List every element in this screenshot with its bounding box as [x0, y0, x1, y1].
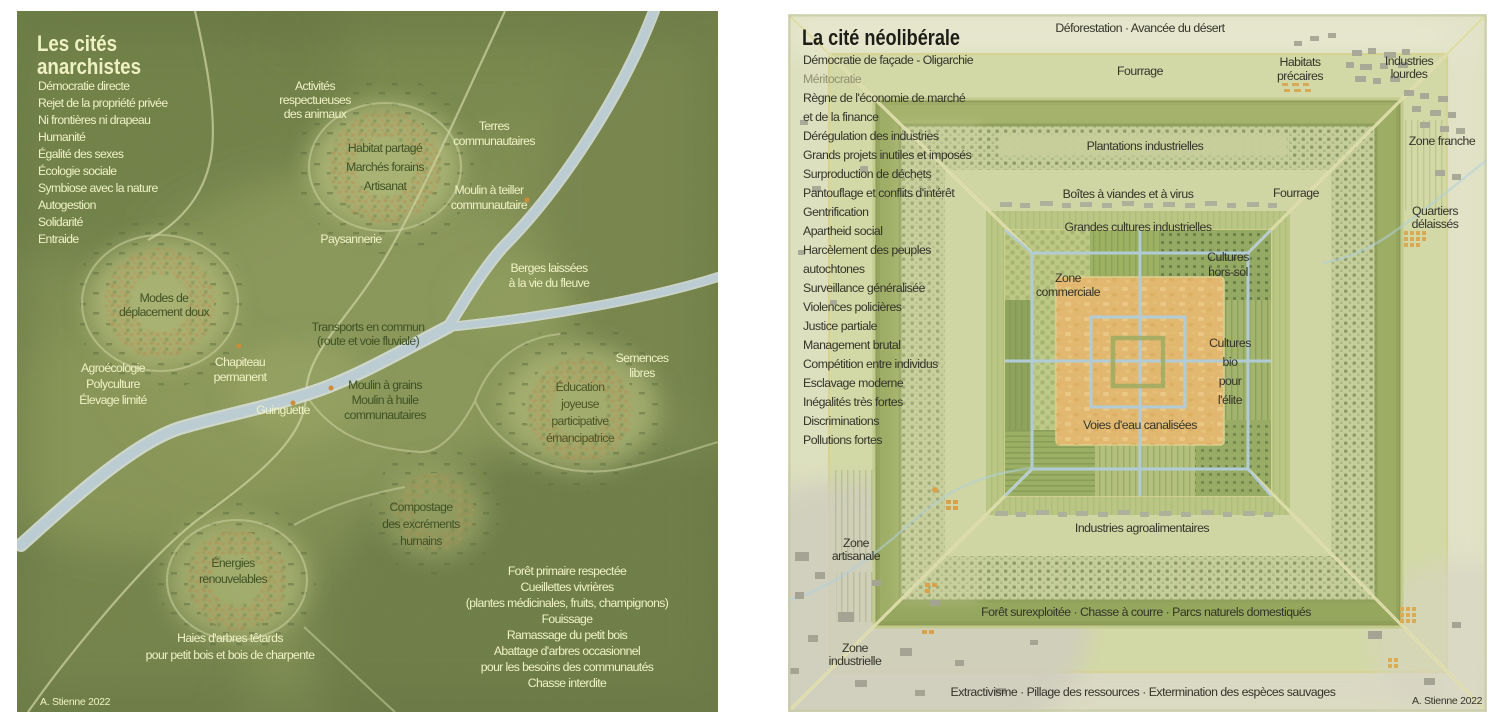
svg-text:Zone franche: Zone franche: [1409, 134, 1476, 148]
svg-text:Ramassage du petit bois: Ramassage du petit bois: [507, 628, 628, 642]
svg-text:Dérégulation des industries: Dérégulation des industries: [803, 129, 939, 143]
svg-text:Cultures: Cultures: [1207, 250, 1249, 264]
svg-text:Justice partiale: Justice partiale: [803, 319, 878, 333]
svg-text:des excréments: des excréments: [382, 517, 460, 531]
svg-text:libres: libres: [629, 366, 655, 380]
svg-text:Habitats: Habitats: [1279, 55, 1320, 69]
svg-text:communautaires: communautaires: [453, 134, 535, 148]
svg-text:Inégalités très fortes: Inégalités très fortes: [803, 395, 903, 409]
svg-text:Démocratie de façade - Oligarc: Démocratie de façade - Oligarchie: [803, 53, 974, 67]
svg-text:Quartiers: Quartiers: [1412, 204, 1458, 218]
svg-text:Moulin à huile: Moulin à huile: [352, 393, 420, 407]
svg-text:lourdes: lourdes: [1391, 67, 1428, 81]
svg-text:Cultures: Cultures: [1209, 336, 1251, 350]
svg-text:communautaire: communautaire: [451, 198, 528, 212]
svg-text:Chasse interdite: Chasse interdite: [528, 676, 607, 690]
svg-text:Semences: Semences: [616, 351, 669, 365]
svg-text:Entraide: Entraide: [38, 232, 79, 246]
svg-text:Règne de l'économie de marché: Règne de l'économie de marché: [803, 91, 966, 105]
svg-text:Énergies: Énergies: [211, 555, 255, 570]
svg-text:Plantations industrielles: Plantations industrielles: [1087, 139, 1204, 153]
svg-text:respectueuses: respectueuses: [279, 93, 351, 107]
svg-text:Moulin à grains: Moulin à grains: [348, 378, 422, 392]
svg-text:Gentrification: Gentrification: [803, 205, 869, 219]
svg-text:joyeuse: joyeuse: [560, 397, 600, 411]
svg-text:Humanité: Humanité: [38, 130, 86, 144]
svg-text:Industries agroalimentaires: Industries agroalimentaires: [1075, 521, 1209, 535]
svg-text:Rejet de la propriété privée: Rejet de la propriété privée: [38, 96, 168, 110]
svg-text:Zone: Zone: [843, 536, 870, 550]
svg-text:Abattage d'arbres occasionnel: Abattage d'arbres occasionnel: [494, 644, 640, 658]
svg-text:Paysannerie: Paysannerie: [320, 232, 382, 246]
svg-text:communautaires: communautaires: [344, 408, 426, 422]
svg-text:Zone: Zone: [842, 641, 869, 655]
svg-text:A. Stienne 2022: A. Stienne 2022: [40, 696, 111, 708]
svg-text:et de la finance: et de la finance: [803, 110, 879, 124]
svg-text:Harcèlement des peuples: Harcèlement des peuples: [803, 243, 931, 257]
svg-text:Marchés forains: Marchés forains: [346, 160, 424, 174]
svg-text:Modes de: Modes de: [140, 291, 190, 305]
svg-text:bio: bio: [1223, 355, 1239, 369]
svg-text:Surveillance généralisée: Surveillance généralisée: [803, 281, 926, 295]
svg-text:commerciale: commerciale: [1036, 285, 1101, 299]
svg-text:Écologie sociale: Écologie sociale: [38, 163, 117, 178]
svg-text:industrielle: industrielle: [829, 654, 882, 668]
svg-text:précaires: précaires: [1277, 69, 1323, 83]
svg-text:Pantouflage et conflits d'inté: Pantouflage et conflits d'intérêt: [803, 186, 955, 200]
svg-text:Forêt surexploitée · Chasse à: Forêt surexploitée · Chasse à courre · P…: [981, 605, 1311, 619]
svg-text:Discriminations: Discriminations: [803, 414, 879, 428]
svg-text:Déforestation · Avancée du dés: Déforestation · Avancée du désert: [1055, 21, 1225, 35]
svg-text:Fourrage: Fourrage: [1117, 64, 1164, 78]
svg-text:Management brutal: Management brutal: [803, 338, 900, 352]
svg-text:pour: pour: [1219, 374, 1242, 388]
svg-text:des animaux: des animaux: [284, 107, 347, 121]
svg-text:Démocratie directe: Démocratie directe: [38, 79, 130, 93]
svg-text:déplacement doux: déplacement doux: [119, 305, 210, 319]
svg-text:Haies d'arbres têtards: Haies d'arbres têtards: [177, 631, 283, 645]
svg-text:Égalité des sexes: Égalité des sexes: [38, 146, 124, 161]
svg-text:Forêt primaire respectée: Forêt primaire respectée: [508, 564, 627, 578]
svg-text:à la vie du fleuve: à la vie du fleuve: [509, 276, 590, 290]
svg-text:Moulin à teiller: Moulin à teiller: [455, 183, 525, 197]
svg-text:Industries: Industries: [1385, 54, 1434, 68]
svg-text:renouvelables: renouvelables: [199, 572, 268, 586]
svg-text:permanent: permanent: [214, 370, 268, 384]
svg-text:A. Stienne 2022: A. Stienne 2022: [1412, 695, 1483, 707]
svg-text:Voies d'eau canalisées: Voies d'eau canalisées: [1083, 418, 1197, 432]
svg-text:autochtones: autochtones: [803, 262, 865, 276]
svg-text:Habitat partagé: Habitat partagé: [348, 141, 423, 155]
svg-text:Zone: Zone: [1055, 271, 1082, 285]
svg-text:Boîtes à viandes et à virus: Boîtes à viandes et à virus: [1063, 187, 1194, 201]
svg-text:La cité néolibérale: La cité néolibérale: [802, 25, 960, 50]
svg-text:(route et voie fluviale): (route et voie fluviale): [317, 334, 420, 348]
svg-text:Grands projets inutiles et imp: Grands projets inutiles et imposés: [803, 148, 972, 162]
svg-text:Solidarité: Solidarité: [38, 215, 84, 229]
svg-text:Éducation: Éducation: [556, 379, 605, 394]
svg-text:Chapiteau: Chapiteau: [215, 355, 265, 369]
svg-text:émancipatrice: émancipatrice: [546, 431, 615, 445]
svg-text:Violences policières: Violences policières: [803, 300, 902, 314]
svg-text:pour les besoins des communaut: pour les besoins des communautés: [481, 660, 654, 674]
svg-text:Polyculture: Polyculture: [86, 377, 141, 391]
svg-text:Autogestion: Autogestion: [38, 198, 96, 212]
svg-text:délaissés: délaissés: [1412, 217, 1459, 231]
svg-text:Terres: Terres: [479, 119, 510, 133]
svg-text:Extractivisme · Pillage des re: Extractivisme · Pillage des ressources ·…: [951, 685, 1336, 699]
svg-text:Cueillettes vivrières: Cueillettes vivrières: [520, 580, 614, 594]
svg-text:Méritocratie: Méritocratie: [803, 72, 862, 86]
svg-text:Esclavage moderne: Esclavage moderne: [803, 376, 904, 390]
svg-text:Pollutions fortes: Pollutions fortes: [803, 433, 882, 447]
svg-text:Apartheid social: Apartheid social: [803, 224, 883, 238]
svg-text:anarchistes: anarchistes: [37, 54, 141, 79]
svg-text:Ni frontières ni drapeau: Ni frontières ni drapeau: [38, 113, 150, 127]
svg-text:humains: humains: [400, 534, 442, 548]
svg-text:Artisanat: Artisanat: [364, 179, 408, 193]
svg-text:Fouissage: Fouissage: [542, 612, 594, 626]
svg-text:Compétition entre individus: Compétition entre individus: [803, 357, 938, 371]
svg-text:Berges laissées: Berges laissées: [510, 261, 588, 275]
svg-text:Surproduction de déchets: Surproduction de déchets: [803, 167, 931, 181]
svg-text:pour petit bois et bois de cha: pour petit bois et bois de charpente: [146, 648, 316, 662]
svg-text:Fourrage: Fourrage: [1273, 186, 1320, 200]
svg-text:Agroécologie: Agroécologie: [81, 361, 146, 375]
svg-text:Les cités: Les cités: [37, 31, 117, 56]
svg-text:Élevage limité: Élevage limité: [79, 392, 147, 407]
svg-text:artisanale: artisanale: [832, 549, 881, 563]
svg-text:l'élite: l'élite: [1218, 393, 1243, 407]
svg-text:participative: participative: [551, 414, 609, 428]
svg-text:Transports en commun: Transports en commun: [312, 320, 425, 334]
svg-text:Guinguette: Guinguette: [256, 403, 310, 417]
svg-text:Grandes cultures industrielles: Grandes cultures industrielles: [1065, 220, 1212, 234]
svg-text:Compostage: Compostage: [389, 500, 453, 514]
svg-text:hors-sol: hors-sol: [1208, 265, 1248, 279]
svg-text:Activités: Activités: [295, 79, 335, 93]
svg-text:(plantes médicinales, fruits,: (plantes médicinales, fruits, champignon…: [466, 596, 669, 610]
svg-text:Symbiose avec la nature: Symbiose avec la nature: [38, 181, 158, 195]
